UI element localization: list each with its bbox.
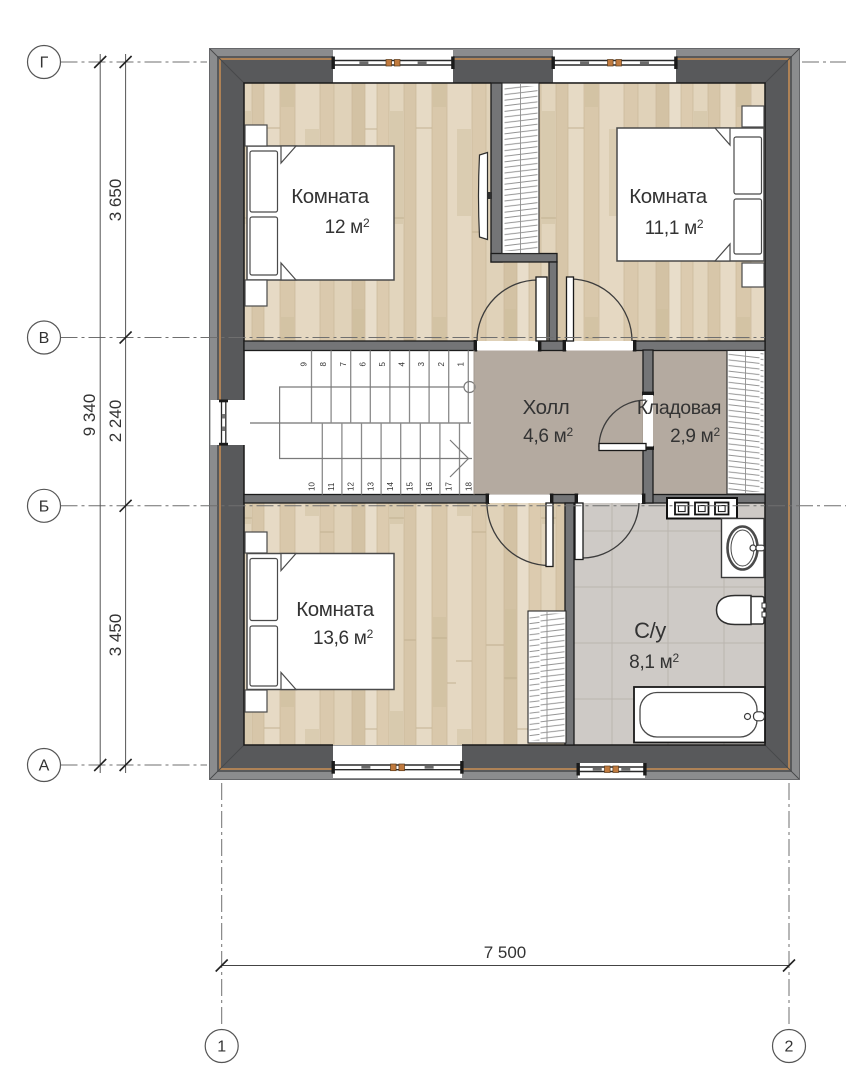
svg-text:Комната: Комната bbox=[291, 185, 369, 208]
svg-text:А: А bbox=[39, 758, 50, 775]
svg-text:В: В bbox=[39, 330, 50, 347]
svg-text:4: 4 bbox=[398, 361, 407, 366]
svg-text:7: 7 bbox=[339, 361, 348, 366]
svg-text:4,6 м2: 4,6 м2 bbox=[523, 425, 573, 447]
svg-text:11: 11 bbox=[327, 482, 336, 491]
svg-text:1: 1 bbox=[456, 361, 465, 366]
svg-text:Комната: Комната bbox=[296, 598, 374, 621]
svg-text:16: 16 bbox=[425, 482, 434, 491]
svg-text:13: 13 bbox=[366, 482, 375, 491]
svg-text:3 450: 3 450 bbox=[106, 614, 125, 657]
svg-text:2: 2 bbox=[785, 1039, 794, 1056]
svg-text:17: 17 bbox=[445, 482, 454, 491]
svg-text:13,6 м2: 13,6 м2 bbox=[313, 627, 374, 649]
svg-text:Холл: Холл bbox=[523, 396, 570, 419]
svg-text:8: 8 bbox=[319, 361, 328, 366]
svg-text:9: 9 bbox=[300, 361, 309, 366]
svg-text:7 500: 7 500 bbox=[484, 943, 527, 962]
svg-text:10: 10 bbox=[308, 482, 317, 491]
svg-text:18: 18 bbox=[464, 482, 473, 491]
svg-text:14: 14 bbox=[386, 482, 395, 491]
svg-text:8,1 м2: 8,1 м2 bbox=[629, 651, 679, 673]
svg-text:6: 6 bbox=[358, 361, 367, 366]
svg-text:5: 5 bbox=[378, 361, 387, 366]
svg-text:3: 3 bbox=[417, 361, 426, 366]
svg-text:9 340: 9 340 bbox=[80, 394, 99, 437]
svg-text:3 650: 3 650 bbox=[106, 179, 125, 222]
svg-text:2: 2 bbox=[437, 361, 446, 366]
svg-text:11,1 м2: 11,1 м2 bbox=[645, 217, 704, 239]
svg-text:12: 12 bbox=[347, 482, 356, 491]
svg-text:1: 1 bbox=[217, 1039, 226, 1056]
svg-text:Комната: Комната bbox=[629, 185, 707, 208]
svg-text:Б: Б bbox=[39, 498, 50, 515]
svg-text:2 240: 2 240 bbox=[106, 400, 125, 443]
svg-text:С/у: С/у bbox=[634, 618, 666, 643]
svg-text:2,9 м2: 2,9 м2 bbox=[670, 425, 720, 447]
svg-text:Кладовая: Кладовая bbox=[637, 397, 721, 419]
svg-text:Г: Г bbox=[40, 55, 49, 72]
svg-text:15: 15 bbox=[406, 482, 415, 491]
